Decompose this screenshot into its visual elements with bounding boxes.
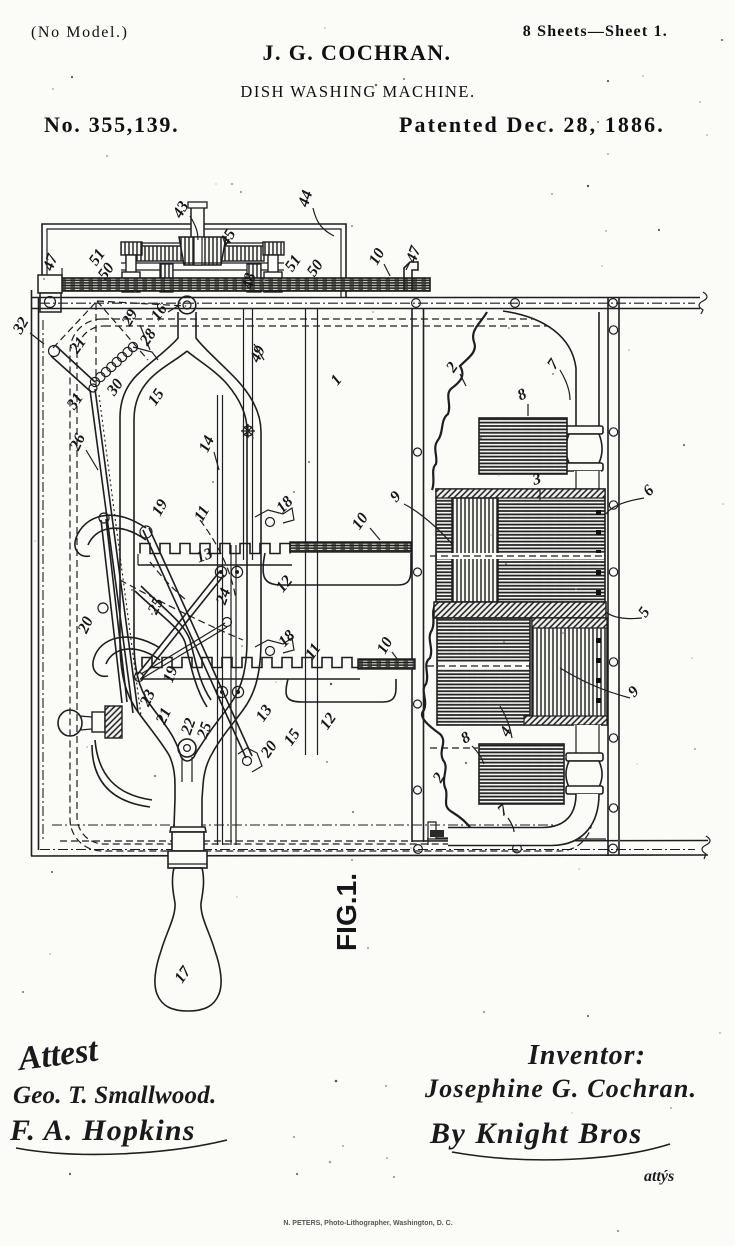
svg-text:12: 12 (317, 710, 340, 733)
svg-text:By Knight Bros: By Knight Bros (429, 1117, 643, 1150)
svg-text:15: 15 (281, 726, 304, 749)
svg-text:32: 32 (9, 315, 32, 338)
svg-text:20: 20 (257, 738, 281, 762)
svg-text:No. 355,139.: No. 355,139. (44, 112, 179, 137)
svg-text:23: 23 (136, 687, 159, 710)
svg-text:Attest: Attest (14, 1031, 101, 1078)
svg-text:47: 47 (403, 243, 425, 266)
svg-text:49: 49 (246, 343, 269, 366)
svg-text:Josephine G. Cochran.: Josephine G. Cochran. (424, 1074, 697, 1103)
svg-text:21: 21 (66, 334, 90, 358)
svg-text:6: 6 (640, 482, 658, 500)
svg-text:1: 1 (327, 372, 345, 389)
svg-text:9: 9 (387, 488, 405, 506)
svg-text:F. A. Hopkins: F. A. Hopkins (9, 1114, 196, 1147)
svg-text:48: 48 (240, 272, 260, 292)
svg-text:17: 17 (171, 963, 195, 987)
svg-text:8 Sheets—Sheet 1.: 8 Sheets—Sheet 1. (523, 23, 668, 40)
svg-text:9: 9 (625, 683, 643, 701)
svg-text:25: 25 (144, 595, 167, 618)
svg-text:13: 13 (194, 545, 215, 566)
svg-text:18: 18 (275, 627, 298, 650)
svg-text:8: 8 (515, 386, 529, 405)
svg-text:N. PETERS, Photo-Lithographer,: N. PETERS, Photo-Lithographer, Washingto… (283, 1220, 452, 1227)
svg-text:21: 21 (152, 705, 175, 728)
svg-text:2: 2 (442, 359, 461, 376)
svg-text:19: 19 (149, 497, 172, 519)
svg-text:Inventor:: Inventor: (527, 1040, 646, 1071)
svg-text:Patented Dec. 28, 1886.: Patented Dec. 28, 1886. (399, 112, 665, 137)
svg-text:47: 47 (40, 251, 62, 274)
svg-text:12: 12 (273, 573, 296, 596)
svg-text:20: 20 (74, 614, 97, 637)
svg-text:8: 8 (458, 729, 473, 748)
svg-text:14: 14 (196, 433, 218, 455)
svg-text:J. G. COCHRAN.: J. G. COCHRAN. (263, 40, 452, 65)
svg-text:attýs: attýs (644, 1168, 674, 1185)
svg-text:FIG.1.: FIG.1. (331, 873, 362, 951)
svg-text:11: 11 (191, 503, 213, 525)
svg-text:51: 51 (282, 252, 305, 275)
svg-text:13: 13 (253, 702, 276, 725)
svg-text:44: 44 (295, 188, 316, 209)
svg-text:31: 31 (63, 390, 87, 414)
svg-text:50: 50 (304, 257, 327, 280)
svg-text:10: 10 (349, 510, 372, 533)
svg-text:15: 15 (145, 386, 168, 409)
svg-text:Geo. T. Smallwood.: Geo. T. Smallwood. (13, 1082, 216, 1109)
svg-text:10: 10 (366, 246, 389, 268)
svg-text:(No Model.): (No Model.) (31, 24, 129, 41)
svg-text:DISH WASHING MACHINE.: DISH WASHING MACHINE. (240, 82, 475, 101)
